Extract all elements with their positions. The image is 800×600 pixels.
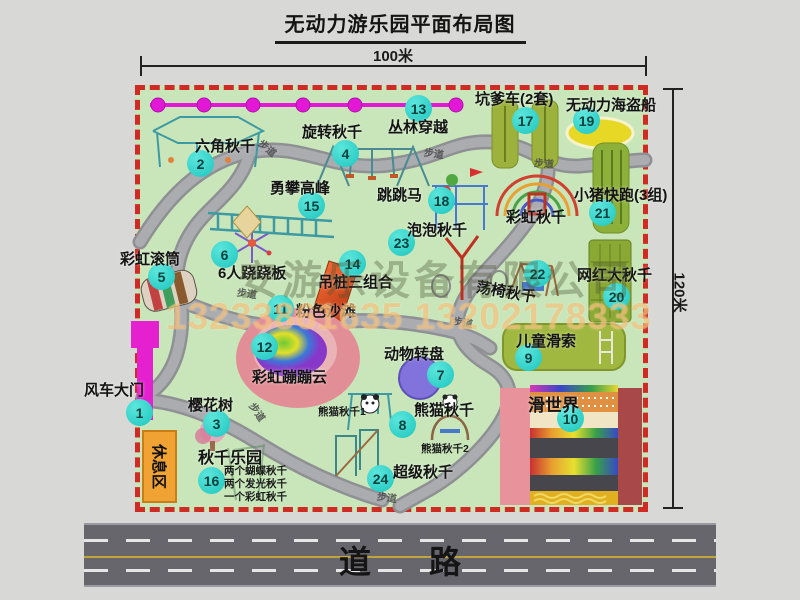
- item-18-label: 跳跳马: [377, 184, 422, 205]
- item-10-label: 滑世界: [528, 391, 579, 416]
- panda-swing-1-label: 熊猫秋千1: [318, 404, 366, 419]
- item-16-marker: 16: [198, 467, 225, 494]
- item-18-marker: 18: [428, 187, 455, 214]
- walkway-label: 步道: [376, 488, 398, 506]
- top-dimension-tick-left: [140, 56, 142, 76]
- item-13-label: 丛林穿越: [388, 116, 448, 137]
- swing-park-note-3: 一个彩虹秋千: [224, 489, 287, 504]
- right-dimension-tick-bottom: [663, 507, 683, 509]
- item-17-marker: 17: [512, 107, 539, 134]
- road-label: 道路: [84, 537, 716, 583]
- height-dimension-label: 120米: [670, 272, 691, 312]
- item-8-marker: 8: [389, 411, 416, 438]
- top-dimension-tick-right: [645, 56, 647, 76]
- page-title: 无动力游乐园平面布局图: [0, 8, 800, 44]
- item-4-label: 旋转秋千: [302, 121, 362, 142]
- item-23-label: 泡泡秋千: [407, 219, 467, 240]
- rest-area-box: 休息区: [142, 430, 177, 503]
- item-19-label: 无动力海盗船: [566, 94, 656, 115]
- walkway-label: 步道: [423, 144, 445, 162]
- watermark-phone: 13233861635 13202178333: [166, 296, 652, 338]
- rest-area-label: 休息区: [149, 444, 170, 489]
- item-12-label: 彩虹蹦蹦云: [252, 366, 327, 387]
- item-1-label: 风车大门: [84, 379, 144, 400]
- right-dimension-tick-top: [663, 88, 683, 90]
- road-strip: 道路: [84, 523, 716, 587]
- item-7-marker: 7: [427, 361, 454, 388]
- width-dimension-label: 100米: [373, 45, 413, 66]
- item-7-label: 动物转盘: [384, 343, 444, 364]
- item-4-marker: 4: [332, 140, 359, 167]
- item-2-label: 六角秋千: [195, 135, 255, 156]
- item-24-label: 超级秋千: [393, 461, 453, 482]
- park-layout-poster: 无动力游乐园平面布局图 100米 120米: [0, 0, 800, 600]
- page-title-text: 无动力游乐园平面布局图: [275, 8, 526, 44]
- walkway-label: 步道: [533, 154, 554, 171]
- item-15-label: 勇攀高峰: [270, 177, 330, 198]
- rainbow-swing-label: 彩虹秋千: [506, 206, 566, 227]
- item-5-label: 彩虹滚筒: [120, 248, 180, 269]
- item-21-label: 小猪快跑(3组): [574, 184, 667, 205]
- item-17-label: 坑爹车(2套): [475, 88, 553, 109]
- item-8-label: 熊猫秋千: [414, 399, 474, 420]
- item-3-label: 樱花树: [188, 394, 233, 415]
- item-1-marker: 1: [126, 399, 153, 426]
- panda-swing-2-label: 熊猫秋千2: [421, 441, 469, 456]
